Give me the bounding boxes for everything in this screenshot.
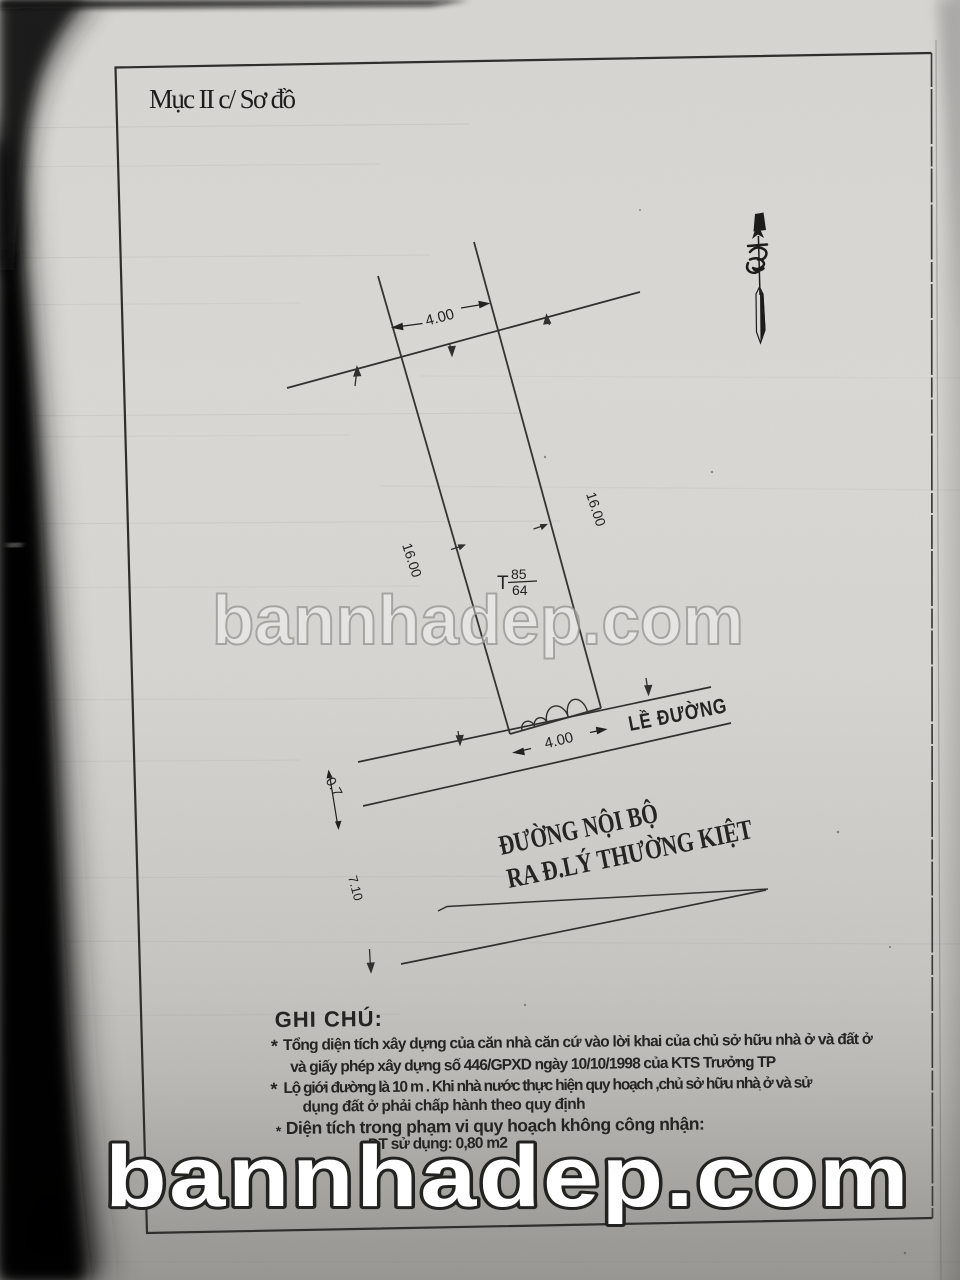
svg-text:*: * xyxy=(270,1079,277,1099)
svg-text:GHI CHÚ:: GHI CHÚ: xyxy=(275,1006,383,1032)
svg-text:85: 85 xyxy=(511,566,527,582)
svg-text:Mục II c/ Sơ đồ: Mục II c/ Sơ đồ xyxy=(149,84,296,114)
svg-text:bannhadep.com: bannhadep.com xyxy=(212,581,744,659)
svg-text:dụng đất ở phải chấp hành theo: dụng đất ở phải chấp hành theo quy định xyxy=(303,1096,586,1116)
svg-text:*: * xyxy=(271,1036,278,1056)
svg-text:bannhadep.com: bannhadep.com xyxy=(105,1129,911,1225)
